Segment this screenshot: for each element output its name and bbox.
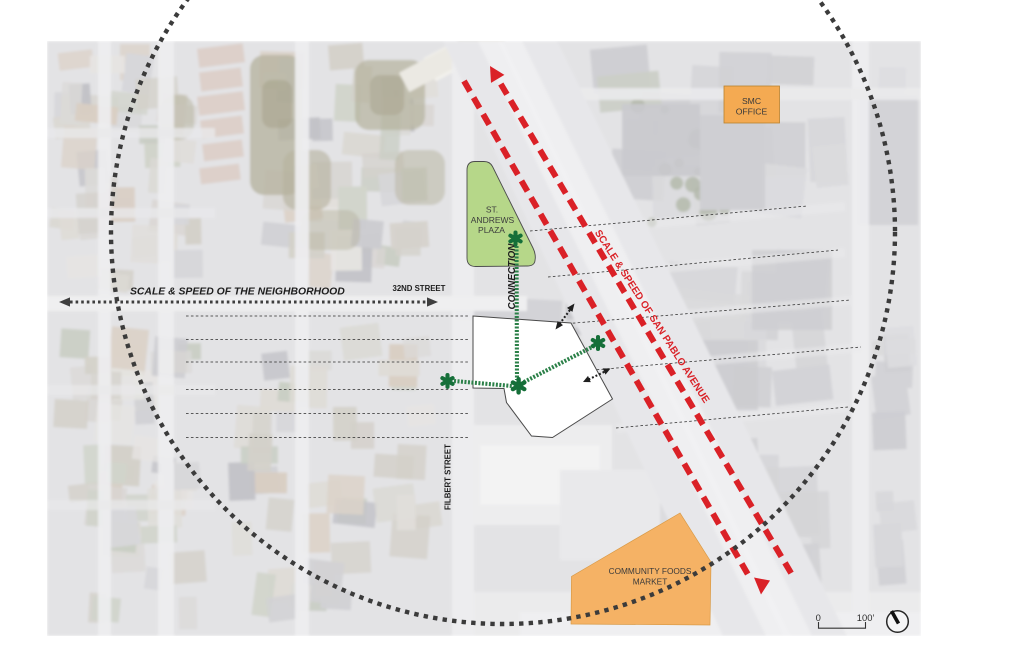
- svg-text:FILBERT STREET: FILBERT STREET: [444, 444, 453, 510]
- svg-text:32ND STREET: 32ND STREET: [393, 284, 446, 293]
- svg-text:SMC: SMC: [742, 96, 761, 106]
- svg-text:MARKET: MARKET: [633, 577, 668, 587]
- svg-text:PLAZA: PLAZA: [478, 225, 505, 235]
- svg-text:SCALE & SPEED OF THE NEIGHBORH: SCALE & SPEED OF THE NEIGHBORHOOD: [130, 287, 345, 298]
- svg-text:ST.: ST.: [486, 204, 498, 214]
- svg-text:ANDREWS: ANDREWS: [471, 215, 515, 225]
- svg-text:100’: 100’: [857, 612, 875, 623]
- svg-text:CONNECTION: CONNECTION: [507, 243, 518, 310]
- svg-text:OFFICE: OFFICE: [736, 107, 768, 117]
- svg-text:0: 0: [816, 612, 821, 623]
- svg-text:COMMUNITY FOODS: COMMUNITY FOODS: [609, 566, 692, 576]
